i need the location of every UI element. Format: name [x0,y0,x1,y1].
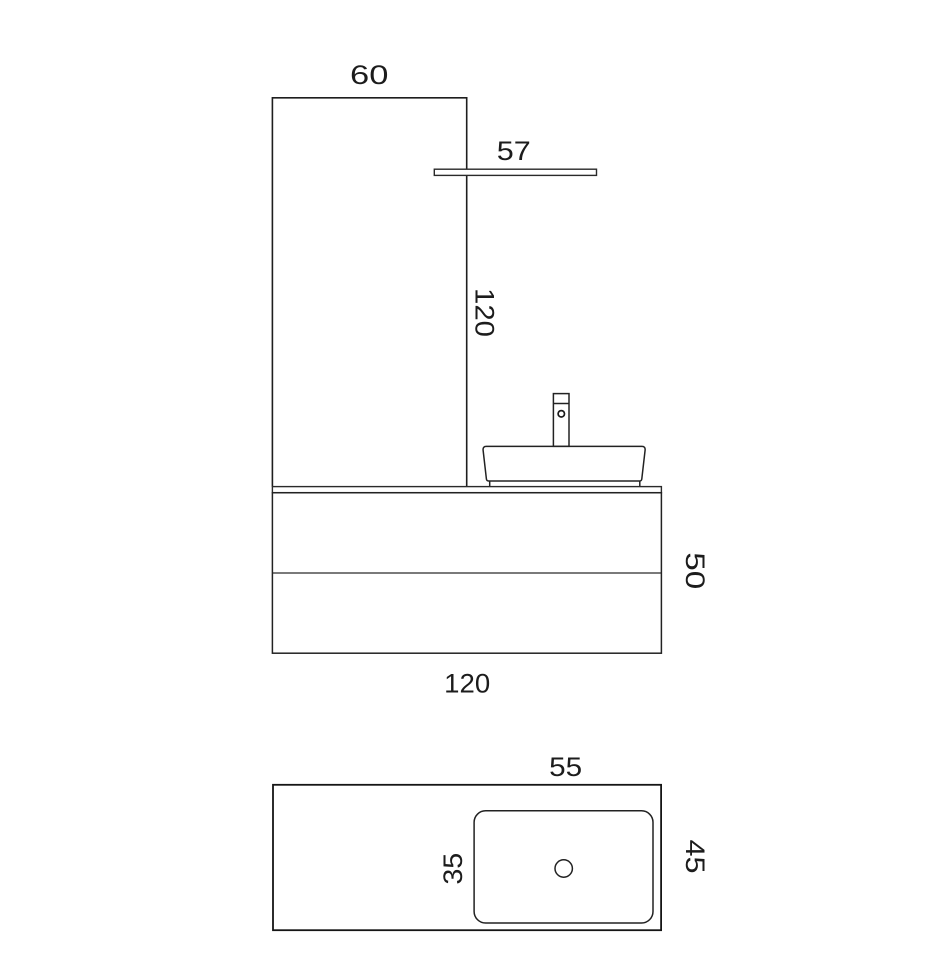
svg-text:35: 35 [438,853,468,885]
svg-text:120: 120 [469,288,499,337]
svg-text:45: 45 [680,840,710,874]
svg-text:57: 57 [497,136,531,166]
svg-text:60: 60 [350,60,388,90]
svg-text:55: 55 [549,752,582,782]
svg-text:120: 120 [444,669,490,699]
svg-text:50: 50 [680,552,710,589]
